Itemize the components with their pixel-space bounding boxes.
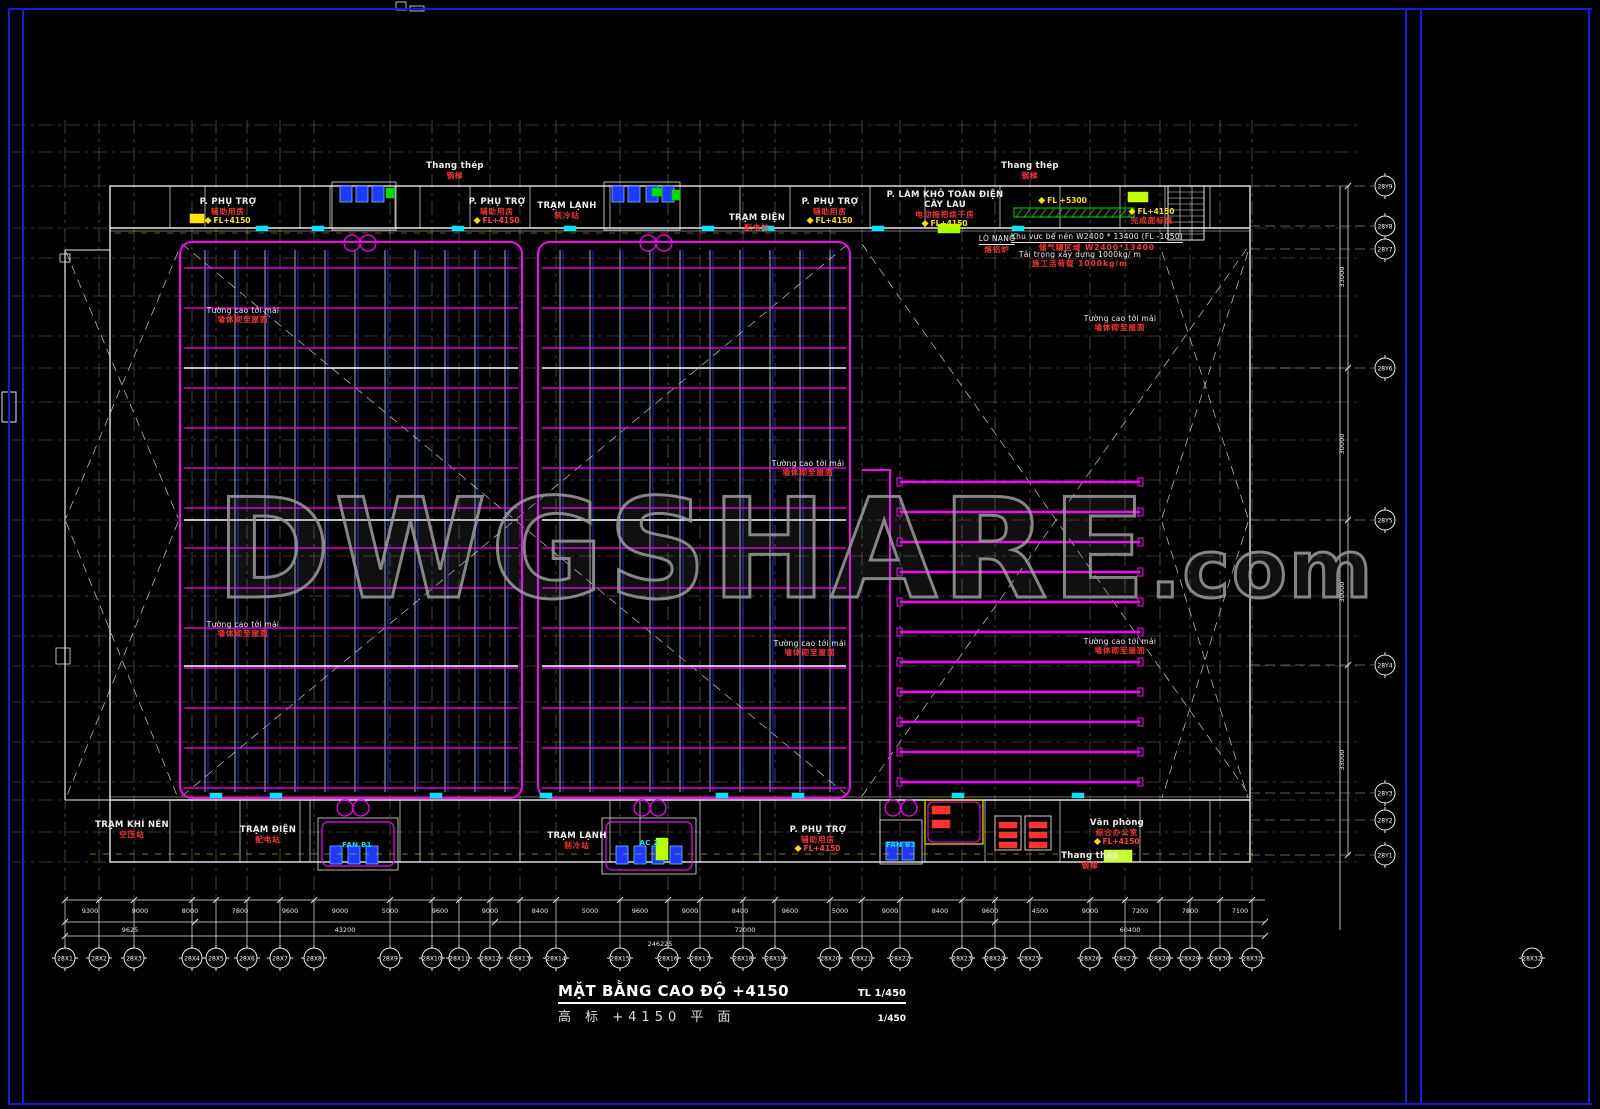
svg-text: 28X30 (1210, 956, 1230, 963)
svg-text: 28X6 (239, 956, 255, 963)
svg-text: 28X22 (890, 956, 910, 963)
svg-text: 28X7 (272, 956, 288, 963)
svg-text: 28X10 (422, 956, 442, 963)
svg-text: 8400 (532, 907, 549, 915)
drawing-scale-label: TL 1/450 (858, 988, 906, 999)
drawing-title-cn: 高 标 +4150 平 面 (558, 1006, 736, 1025)
svg-text: 9600 (632, 907, 649, 915)
svg-text: 72000 (735, 926, 756, 934)
frame-right-outer (1588, 8, 1590, 1105)
frame-top (8, 8, 1592, 10)
svg-text: 5000 (832, 907, 849, 915)
svg-text: 28Y1 (1377, 853, 1392, 860)
svg-text: 28X23 (952, 956, 972, 963)
svg-text: 9600 (282, 907, 299, 915)
title-underline (558, 1002, 906, 1004)
svg-text: 30000 (1338, 582, 1346, 603)
svg-text: 28X3 (126, 956, 142, 963)
axis-bubbles-x: 28X128X228X328X428X528X628X728X828X928X1… (52, 900, 1545, 971)
svg-text: 28X25 (1020, 956, 1040, 963)
frame-bottom (8, 1103, 1592, 1105)
svg-text: 8000 (182, 907, 199, 915)
svg-text: 28X21 (852, 956, 872, 963)
svg-text: 9600 (432, 907, 449, 915)
frame-left-outer (8, 8, 10, 1105)
svg-text: 28X26 (1080, 956, 1100, 963)
svg-text: 43200 (335, 926, 356, 934)
svg-text: 28Y3 (1377, 791, 1392, 798)
svg-text: 4500 (1032, 907, 1049, 915)
axis-bubbles-y: 28Y928Y828Y728Y628Y528Y428Y328Y228Y1 (1250, 173, 1395, 868)
svg-text: 28X20 (820, 956, 840, 963)
svg-text: 9600 (782, 907, 799, 915)
svg-text: 28X32 (1522, 956, 1542, 963)
svg-text: 9300 (82, 907, 99, 915)
svg-text: 5000 (582, 907, 599, 915)
svg-text: 9000 (332, 907, 349, 915)
svg-text: 33000 (1338, 750, 1346, 771)
svg-text: 8400 (932, 907, 949, 915)
svg-text: 28Y8 (1377, 224, 1392, 231)
svg-text: 28X29 (1180, 956, 1200, 963)
svg-text: 60400 (1120, 926, 1141, 934)
svg-text: 28X2 (91, 956, 107, 963)
frame-left-inner (22, 8, 24, 1105)
svg-text: 28Y5 (1377, 518, 1392, 525)
diagonal-braces (66, 244, 1250, 798)
drawing-svg: 9300900080007800960090005000960090008400… (0, 0, 1600, 1109)
grid-lines (12, 120, 1362, 900)
svg-text: 28X28 (1150, 956, 1170, 963)
svg-text: 28X24 (985, 956, 1005, 963)
equipment-clusters (2, 2, 1255, 874)
svg-text: 28Y9 (1377, 184, 1392, 191)
svg-text: 30000 (1338, 434, 1346, 455)
svg-text: 28Y2 (1377, 818, 1392, 825)
svg-text: 28Y6 (1377, 366, 1392, 373)
svg-text: 28X8 (306, 956, 322, 963)
svg-text: 28X17 (690, 956, 710, 963)
svg-text: 28Y4 (1377, 663, 1392, 670)
frame-right-mid (1420, 8, 1422, 1105)
svg-text: 28Y7 (1377, 247, 1392, 254)
drawing-scale-value: 1/450 (878, 1014, 906, 1024)
svg-text: 7100 (1232, 907, 1249, 915)
dimensions: 9300900080007800960090005000960090008400… (62, 183, 1351, 948)
svg-text: 28X15 (610, 956, 630, 963)
svg-text: 33000 (1338, 267, 1346, 288)
svg-text: 28X1 (57, 956, 73, 963)
svg-text: 28X16 (658, 956, 678, 963)
svg-text: 28X27 (1115, 956, 1135, 963)
svg-text: 28X31 (1242, 956, 1262, 963)
svg-text: 9000 (882, 907, 899, 915)
svg-text: 28X14 (546, 956, 566, 963)
cad-canvas: 9300900080007800960090005000960090008400… (0, 0, 1600, 1109)
svg-text: 28X4 (184, 956, 200, 963)
svg-text: 9625 (122, 926, 139, 934)
svg-text: 28X13 (510, 956, 530, 963)
svg-text: 9000 (682, 907, 699, 915)
title-block: MẶT BẰNG CAO ĐỘ +4150 TL 1/450 高 标 +4150… (558, 982, 906, 1025)
svg-text: 7200 (1132, 907, 1149, 915)
svg-text: 8400 (732, 907, 749, 915)
building-walls (65, 186, 1340, 930)
svg-text: 28X19 (765, 956, 785, 963)
svg-text: 9600 (982, 907, 999, 915)
rack-area (862, 470, 1143, 798)
svg-text: 28X12 (480, 956, 500, 963)
drawing-title-vi: MẶT BẰNG CAO ĐỘ +4150 (558, 982, 789, 1000)
svg-text: 28X18 (733, 956, 753, 963)
svg-text: 28X9 (382, 956, 398, 963)
svg-text: 246225 (648, 940, 673, 948)
svg-text: 28X5 (208, 956, 224, 963)
svg-text: 28X11 (449, 956, 469, 963)
svg-text: 7800 (232, 907, 249, 915)
frame-right-inner (1405, 8, 1407, 1105)
